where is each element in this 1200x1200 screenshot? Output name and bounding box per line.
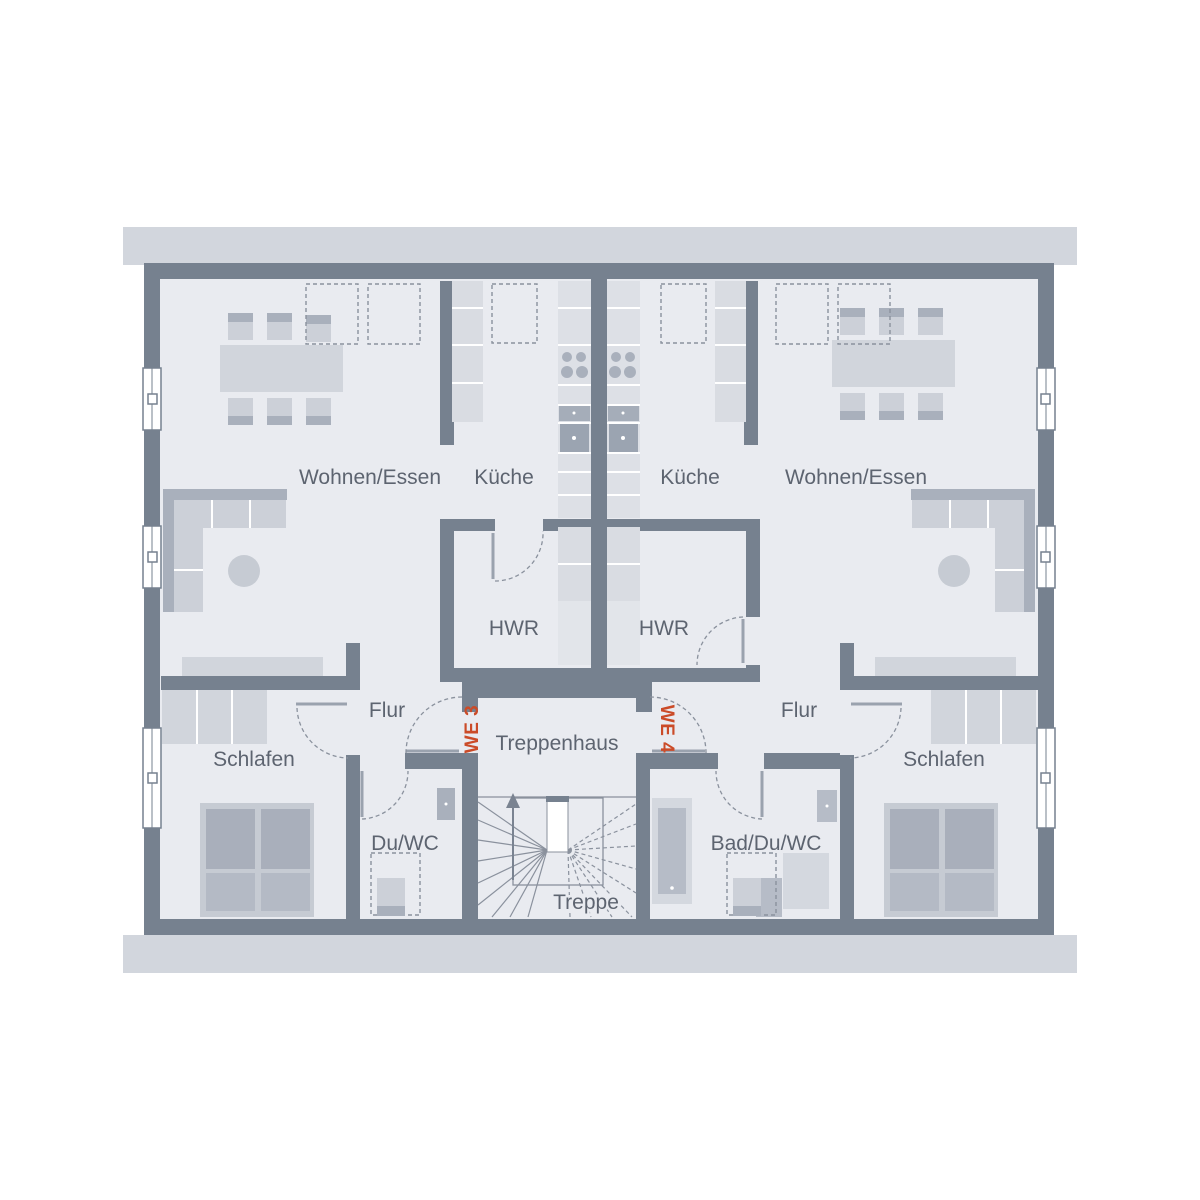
wall-schlafen-right xyxy=(854,676,1038,690)
room-label-flur-we4: Flur xyxy=(781,699,817,722)
party-wall xyxy=(591,279,607,682)
dining-table xyxy=(832,340,955,387)
unit-marker-we3: WE 3 xyxy=(462,705,483,753)
room-label-wohnen-essen-we3: Wohnen/Essen xyxy=(299,466,441,489)
wall-hwr-left-west xyxy=(440,519,454,682)
room-label-kueche-we4: Küche xyxy=(660,466,720,489)
room-label-schlafen-we3: Schlafen xyxy=(213,748,295,771)
wall-hwr-right-east-a xyxy=(746,519,760,617)
room-label-kueche-we3: Küche xyxy=(474,466,534,489)
wall-partition-right xyxy=(744,281,758,445)
coffee-table xyxy=(938,555,970,587)
toilet xyxy=(377,878,405,906)
floor-plan: Wohnen/Essen Küche Küche Wohnen/Essen HW… xyxy=(0,0,1200,1200)
shower-tray xyxy=(783,853,829,909)
roof-band-top xyxy=(123,227,1077,265)
wall-partition-left xyxy=(440,281,454,445)
wardrobe xyxy=(931,690,1036,744)
wall-entry-we4 xyxy=(650,753,718,769)
wall-bad-east xyxy=(840,755,854,919)
room-label-du-wc-we3: Du/WC xyxy=(371,832,439,855)
room-label-bad-du-wc-we4: Bad/Du/WC xyxy=(711,832,822,855)
room-label-wohnen-essen-we4: Wohnen/Essen xyxy=(785,466,927,489)
room-label-hwr-we4: HWR xyxy=(639,617,689,640)
dining-table xyxy=(220,345,343,392)
room-label-schlafen-we4: Schlafen xyxy=(903,748,985,771)
washer-dryer xyxy=(607,527,640,665)
wall-bad-top xyxy=(764,753,840,769)
window xyxy=(1037,728,1055,828)
wall-stub-schlafen-left xyxy=(346,643,360,690)
window xyxy=(143,368,161,430)
bed xyxy=(884,803,998,917)
roof-band-bottom xyxy=(123,935,1077,973)
window xyxy=(1037,526,1055,588)
room-label-treppenhaus: Treppenhaus xyxy=(496,732,619,755)
wall-stub-schlafen-right xyxy=(840,643,854,690)
wall-duwc-west xyxy=(346,755,360,919)
wall-schlafen-left xyxy=(161,676,346,690)
window xyxy=(143,728,161,828)
room-label-treppe: Treppe xyxy=(553,891,619,914)
sideboard xyxy=(182,657,323,676)
wardrobe xyxy=(162,690,267,744)
sideboard xyxy=(875,657,1016,676)
unit-marker-we4: WE 4 xyxy=(656,705,677,753)
wall-hwr-bottom xyxy=(440,668,760,682)
room-label-hwr-we3: HWR xyxy=(489,617,539,640)
window xyxy=(143,526,161,588)
wall-hwr-left-top-a xyxy=(440,519,495,531)
window xyxy=(1037,368,1055,430)
floor-plan-page: Wohnen/Essen Küche Küche Wohnen/Essen HW… xyxy=(0,0,1200,1200)
coffee-table xyxy=(228,555,260,587)
stair-newel xyxy=(547,798,568,852)
wall-stub-we4 xyxy=(636,698,652,712)
wall-stairwell-left xyxy=(462,753,478,919)
washer-dryer xyxy=(558,527,591,665)
bed xyxy=(200,803,314,917)
wall-stairhall-top xyxy=(462,682,652,698)
wall-entry-we3 xyxy=(405,753,462,769)
wall-stairwell-right xyxy=(636,753,650,919)
room-label-flur-we3: Flur xyxy=(369,699,405,722)
